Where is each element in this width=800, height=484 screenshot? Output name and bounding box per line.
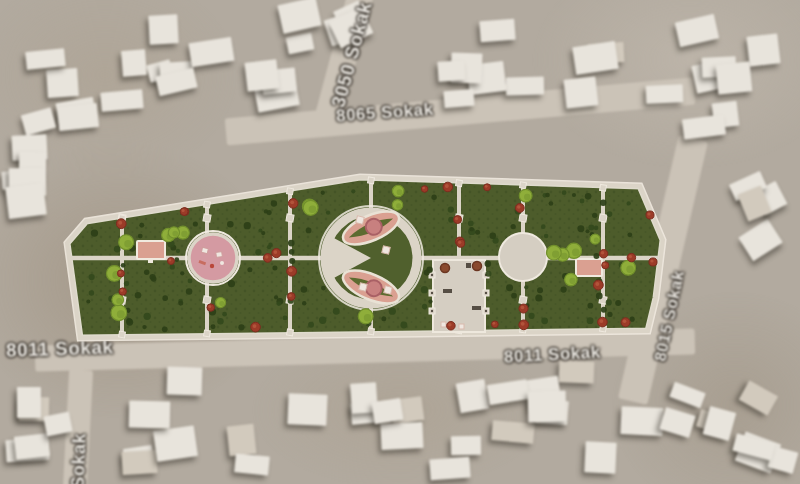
tree bbox=[222, 312, 227, 317]
tree bbox=[321, 191, 325, 195]
tree bbox=[544, 234, 548, 238]
tree bbox=[180, 271, 184, 275]
tree bbox=[193, 221, 198, 226]
tree bbox=[541, 318, 548, 325]
bench bbox=[443, 289, 452, 293]
tree bbox=[211, 324, 216, 329]
tree bbox=[170, 264, 175, 269]
tree bbox=[511, 224, 516, 229]
red-shrub bbox=[117, 270, 124, 277]
tree bbox=[389, 308, 396, 315]
tree bbox=[174, 257, 179, 262]
tree bbox=[537, 287, 543, 293]
tree bbox=[186, 288, 192, 294]
red-shrub bbox=[484, 184, 491, 191]
tree bbox=[238, 324, 244, 330]
tree bbox=[306, 228, 312, 234]
tree bbox=[86, 299, 90, 303]
tree bbox=[489, 232, 496, 239]
tree bbox=[126, 319, 133, 326]
tree bbox=[485, 261, 492, 268]
tree bbox=[138, 234, 143, 239]
tree bbox=[607, 211, 613, 217]
tree bbox=[585, 193, 592, 200]
tree bbox=[333, 308, 340, 315]
tree bbox=[560, 286, 566, 292]
play-equipment bbox=[210, 264, 214, 268]
tree bbox=[485, 271, 491, 277]
playground-circle bbox=[189, 234, 237, 282]
pavilion-step bbox=[148, 259, 153, 263]
tree bbox=[188, 279, 193, 284]
tree bbox=[178, 301, 183, 306]
tree bbox=[528, 313, 534, 319]
plaza-marker bbox=[459, 324, 464, 329]
tree bbox=[91, 229, 98, 236]
bench-marker bbox=[356, 216, 364, 224]
bench-marker bbox=[382, 246, 390, 254]
tree bbox=[431, 195, 436, 200]
tree bbox=[535, 294, 542, 301]
tree bbox=[470, 227, 474, 231]
tree bbox=[421, 286, 428, 293]
tree bbox=[267, 210, 272, 215]
tree bbox=[308, 322, 314, 328]
tree bbox=[162, 295, 168, 301]
play-equipment bbox=[220, 261, 224, 265]
play-equipment bbox=[201, 247, 208, 253]
tree bbox=[381, 316, 386, 321]
circular-plaza bbox=[499, 233, 547, 281]
satellite-map-scene: 8065 Sokak 8011 Sokak 8011 Sokak 8015 So… bbox=[0, 0, 800, 484]
tree bbox=[511, 293, 517, 299]
path-node bbox=[286, 214, 294, 222]
tree bbox=[351, 189, 355, 193]
tree bbox=[448, 206, 454, 212]
tree bbox=[227, 221, 234, 228]
tree bbox=[580, 199, 585, 204]
path-node bbox=[287, 188, 294, 195]
bench bbox=[472, 306, 481, 310]
tree bbox=[400, 322, 407, 329]
tree bbox=[545, 193, 550, 198]
path-node bbox=[203, 296, 211, 304]
planter bbox=[473, 262, 482, 271]
tree bbox=[627, 201, 631, 205]
plaza-furniture bbox=[466, 263, 471, 268]
tree bbox=[228, 280, 235, 287]
tree bbox=[302, 301, 306, 305]
tree bbox=[272, 265, 277, 270]
red-shrub bbox=[421, 186, 428, 193]
play-equipment bbox=[216, 252, 223, 258]
plaza-marker bbox=[441, 322, 446, 327]
tree bbox=[144, 313, 151, 320]
path-node bbox=[600, 184, 607, 191]
tree bbox=[124, 281, 129, 286]
tree bbox=[121, 263, 126, 268]
tree bbox=[88, 274, 94, 280]
bench-marker bbox=[359, 283, 367, 291]
pavilion-left bbox=[137, 241, 165, 259]
tree bbox=[244, 222, 251, 229]
tree bbox=[596, 293, 603, 300]
tree bbox=[541, 224, 546, 229]
tree bbox=[289, 258, 295, 264]
tree bbox=[271, 200, 277, 206]
tree bbox=[261, 231, 265, 235]
path-node bbox=[368, 328, 375, 335]
tree bbox=[135, 292, 141, 298]
tree bbox=[139, 223, 144, 228]
tree bbox=[217, 318, 223, 324]
tree bbox=[289, 249, 295, 255]
red-shrub bbox=[167, 258, 174, 265]
path-node bbox=[203, 214, 211, 222]
tree bbox=[247, 267, 252, 272]
tree bbox=[577, 225, 584, 232]
tree bbox=[588, 225, 594, 231]
tree bbox=[594, 226, 599, 231]
planter bbox=[441, 264, 450, 273]
bench-marker bbox=[384, 286, 392, 294]
tree bbox=[422, 304, 427, 309]
path-node bbox=[204, 330, 211, 337]
red-shrub bbox=[491, 321, 498, 328]
tree bbox=[593, 253, 599, 259]
path-node bbox=[456, 180, 463, 187]
path-node bbox=[287, 329, 294, 336]
tree bbox=[288, 240, 295, 247]
tree bbox=[283, 315, 288, 320]
tree bbox=[162, 326, 168, 332]
tree bbox=[142, 325, 146, 329]
tree bbox=[506, 284, 513, 291]
tree bbox=[607, 312, 612, 317]
path-node bbox=[519, 214, 527, 222]
path-node bbox=[599, 214, 607, 222]
tree bbox=[274, 295, 278, 299]
path-node bbox=[520, 182, 527, 189]
path-node bbox=[204, 201, 211, 208]
tree bbox=[267, 245, 271, 249]
tree bbox=[468, 220, 474, 226]
tree bbox=[587, 317, 594, 324]
tree bbox=[627, 232, 632, 237]
tree bbox=[428, 299, 432, 303]
tree bbox=[321, 286, 326, 291]
tree bbox=[615, 300, 621, 306]
tree bbox=[319, 317, 326, 324]
path-node bbox=[368, 177, 375, 184]
park-plan-overlay bbox=[0, 0, 800, 484]
pavilion-right bbox=[576, 259, 602, 276]
tree bbox=[424, 270, 430, 276]
tree bbox=[572, 193, 576, 197]
tree bbox=[549, 201, 554, 206]
tree bbox=[277, 301, 282, 306]
tree bbox=[586, 229, 590, 233]
tree bbox=[255, 249, 261, 255]
tree bbox=[601, 307, 607, 313]
path-node bbox=[519, 296, 527, 304]
tree bbox=[326, 210, 330, 214]
tree bbox=[151, 276, 157, 282]
tree bbox=[562, 190, 567, 195]
tree bbox=[89, 290, 94, 295]
tree bbox=[524, 285, 528, 289]
tree bbox=[587, 303, 593, 309]
path-node bbox=[119, 331, 126, 338]
tree bbox=[600, 199, 607, 206]
tree bbox=[144, 270, 149, 275]
tree bbox=[475, 230, 480, 235]
tree bbox=[592, 213, 597, 218]
tree bbox=[301, 286, 308, 293]
tree bbox=[176, 249, 180, 253]
tree bbox=[606, 299, 612, 305]
